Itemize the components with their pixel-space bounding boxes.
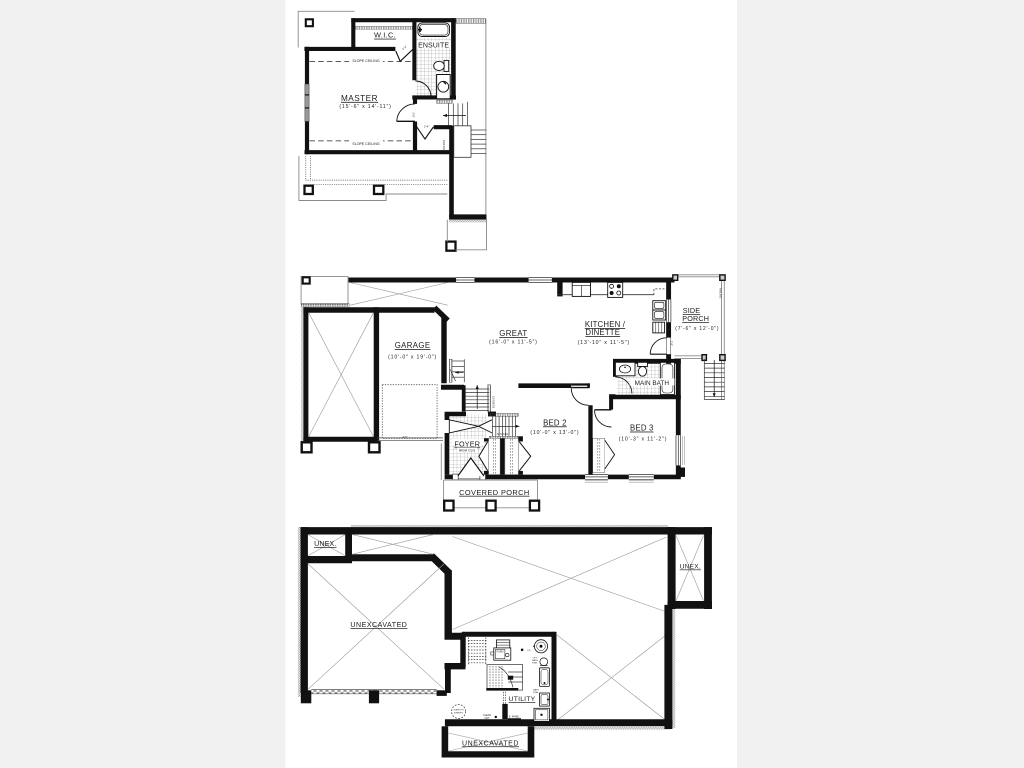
svg-text:COVERED PORCH: COVERED PORCH (459, 488, 530, 497)
svg-text:(VERIFY): (VERIFY) (454, 712, 464, 714)
svg-text:E. PANEL: E. PANEL (509, 716, 520, 719)
svg-text:DINETTE: DINETTE (585, 328, 620, 337)
svg-text:FURN: FURN (497, 650, 504, 653)
svg-text:RAILING: RAILING (719, 288, 723, 298)
svg-text:M.S.T.&G.: M.S.T.&G. (497, 432, 509, 436)
svg-text:(10'-3" x 11'-2"): (10'-3" x 11'-2") (619, 437, 668, 443)
svg-text:(16'-0" x 11'-5"): (16'-0" x 11'-5") (489, 340, 538, 346)
svg-text:SUMP PIT: SUMP PIT (453, 710, 464, 712)
svg-text:FD: FD (528, 650, 531, 652)
svg-text:MASTER: MASTER (341, 94, 378, 103)
svg-text:(15'-6" x 14'-11"): (15'-6" x 14'-11") (339, 104, 391, 110)
svg-text:RGH.: RGH. (532, 663, 538, 665)
svg-text:MAIN BATH: MAIN BATH (635, 380, 670, 387)
svg-text:SLOPE CEILING: SLOPE CEILING (352, 59, 380, 63)
svg-text:UNEXCAVATED: UNEXCAVATED (350, 622, 407, 629)
svg-text:(13'-10" x 11'-5"): (13'-10" x 11'-5") (578, 340, 630, 346)
svg-text:BED 2: BED 2 (543, 418, 567, 427)
svg-text:PORCH: PORCH (682, 314, 709, 323)
svg-text:GREAT: GREAT (499, 329, 527, 338)
svg-text:RGH.: RGH. (533, 692, 539, 694)
svg-text:(7'-6" x 12'-0"): (7'-6" x 12'-0") (675, 326, 719, 332)
svg-text:UNEX.: UNEX. (680, 564, 701, 571)
svg-text:13 RISERS: 13 RISERS (492, 396, 495, 409)
svg-text:2'-6": 2'-6" (411, 113, 415, 118)
svg-text:RAILING: RAILING (442, 140, 446, 150)
svg-text:2'-4": 2'-4" (424, 125, 429, 129)
svg-text:FOYER: FOYER (454, 439, 480, 448)
svg-text:SLOPE CEILING: SLOPE CEILING (352, 142, 380, 146)
svg-text:2'-8": 2'-8" (669, 341, 672, 346)
svg-text:GARAGE: GARAGE (395, 341, 431, 350)
svg-text:OUT: OUT (484, 717, 490, 720)
svg-text:UTILITY: UTILITY (509, 696, 536, 703)
svg-text:HIGH CLG: HIGH CLG (459, 449, 476, 453)
svg-text:4'-0": 4'-0" (402, 435, 407, 439)
svg-text:(10'-0" x 19'-0"): (10'-0" x 19'-0") (388, 355, 437, 361)
svg-text:(10'-0" x 13'-0"): (10'-0" x 13'-0") (530, 430, 579, 436)
svg-text:ENSUITE: ENSUITE (418, 42, 449, 49)
svg-text:W.I.C.: W.I.C. (374, 31, 396, 40)
svg-text:BED 3: BED 3 (630, 424, 654, 433)
svg-text:UNEXCAVATED: UNEXCAVATED (462, 740, 519, 747)
svg-text:UNEX.: UNEX. (314, 541, 336, 548)
